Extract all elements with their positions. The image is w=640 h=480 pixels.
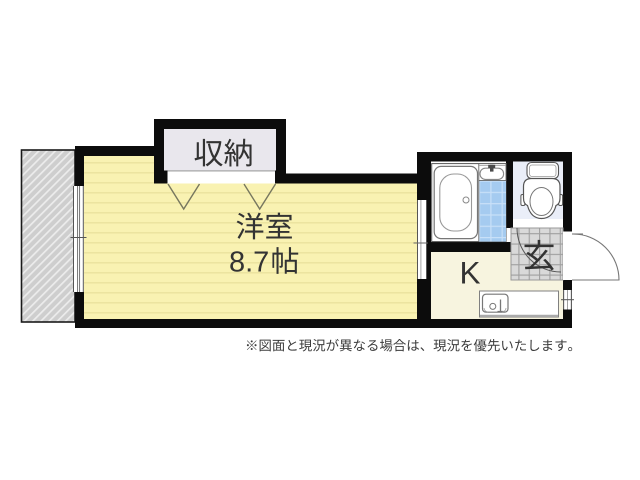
- svg-text:8.7: 8.7: [229, 247, 269, 279]
- svg-text:K: K: [460, 255, 481, 291]
